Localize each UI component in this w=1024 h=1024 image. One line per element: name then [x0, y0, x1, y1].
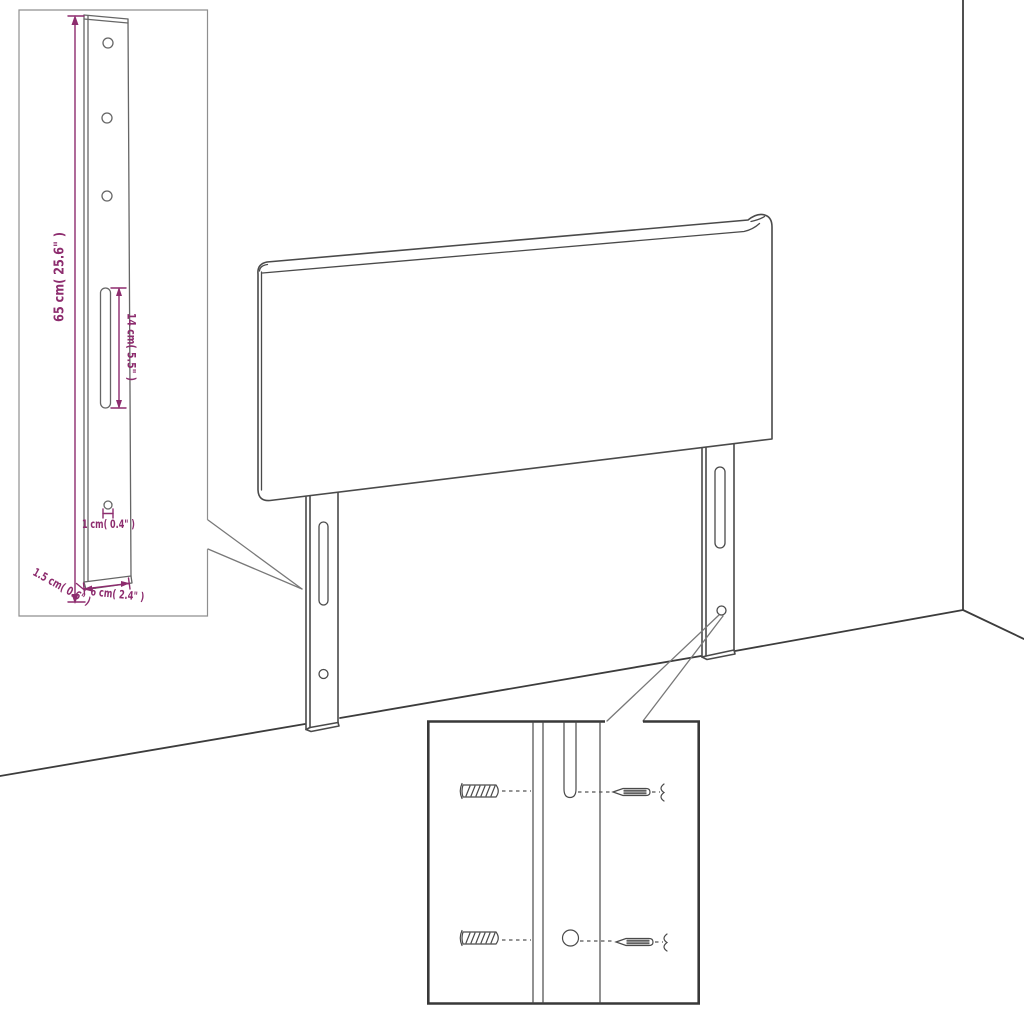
- headboard-panel: [258, 214, 772, 500]
- dim-label-slot-length: 14 cm( 5.5" ): [125, 313, 139, 381]
- floor-line-right-wall: [963, 610, 1024, 639]
- wall-plug-icon: [460, 931, 498, 946]
- floor-line-left: [0, 724, 305, 776]
- screw-icon: [613, 784, 664, 801]
- assembly-diagram: 65 cm( 25.6" ) 14 cm( 5.5" ) 1 cm( 0.4" …: [0, 0, 1024, 1024]
- leg-hole-top-2: [102, 113, 112, 123]
- diagram-canvas: 65 cm( 25.6" ) 14 cm( 5.5" ) 1 cm( 0.4" …: [0, 0, 1024, 1024]
- leg-slot-detail: [101, 288, 111, 408]
- leg-detail-inset: 65 cm( 25.6" ) 14 cm( 5.5" ) 1 cm( 0.4" …: [19, 10, 208, 616]
- floor-line-right: [735, 610, 963, 651]
- alignment-dashes: [502, 791, 614, 941]
- left-leg: [306, 492, 339, 732]
- dim-label-hole-diameter: 1 cm( 0.4" ): [82, 517, 135, 531]
- dim-label-leg-width: 6 cm( 2.4" ): [90, 584, 145, 604]
- screw-icon: [616, 934, 667, 951]
- wall-plug-icon: [460, 784, 498, 799]
- dim-label-leg-height: 65 cm( 25.6" ): [52, 232, 68, 322]
- hole-detail: [563, 930, 579, 946]
- leg-hole-top-3: [102, 191, 112, 201]
- hardware-detail-inset: [428, 722, 698, 1004]
- leg-hole-bottom: [104, 501, 112, 509]
- leg-hole-top-1: [103, 38, 113, 48]
- callout-lines: [208, 520, 723, 721]
- slot-end-detail: [564, 722, 576, 798]
- leg-detail-drawing: [84, 15, 132, 590]
- leg-strip-detail: [533, 722, 600, 1003]
- floor-line-middle: [340, 656, 701, 718]
